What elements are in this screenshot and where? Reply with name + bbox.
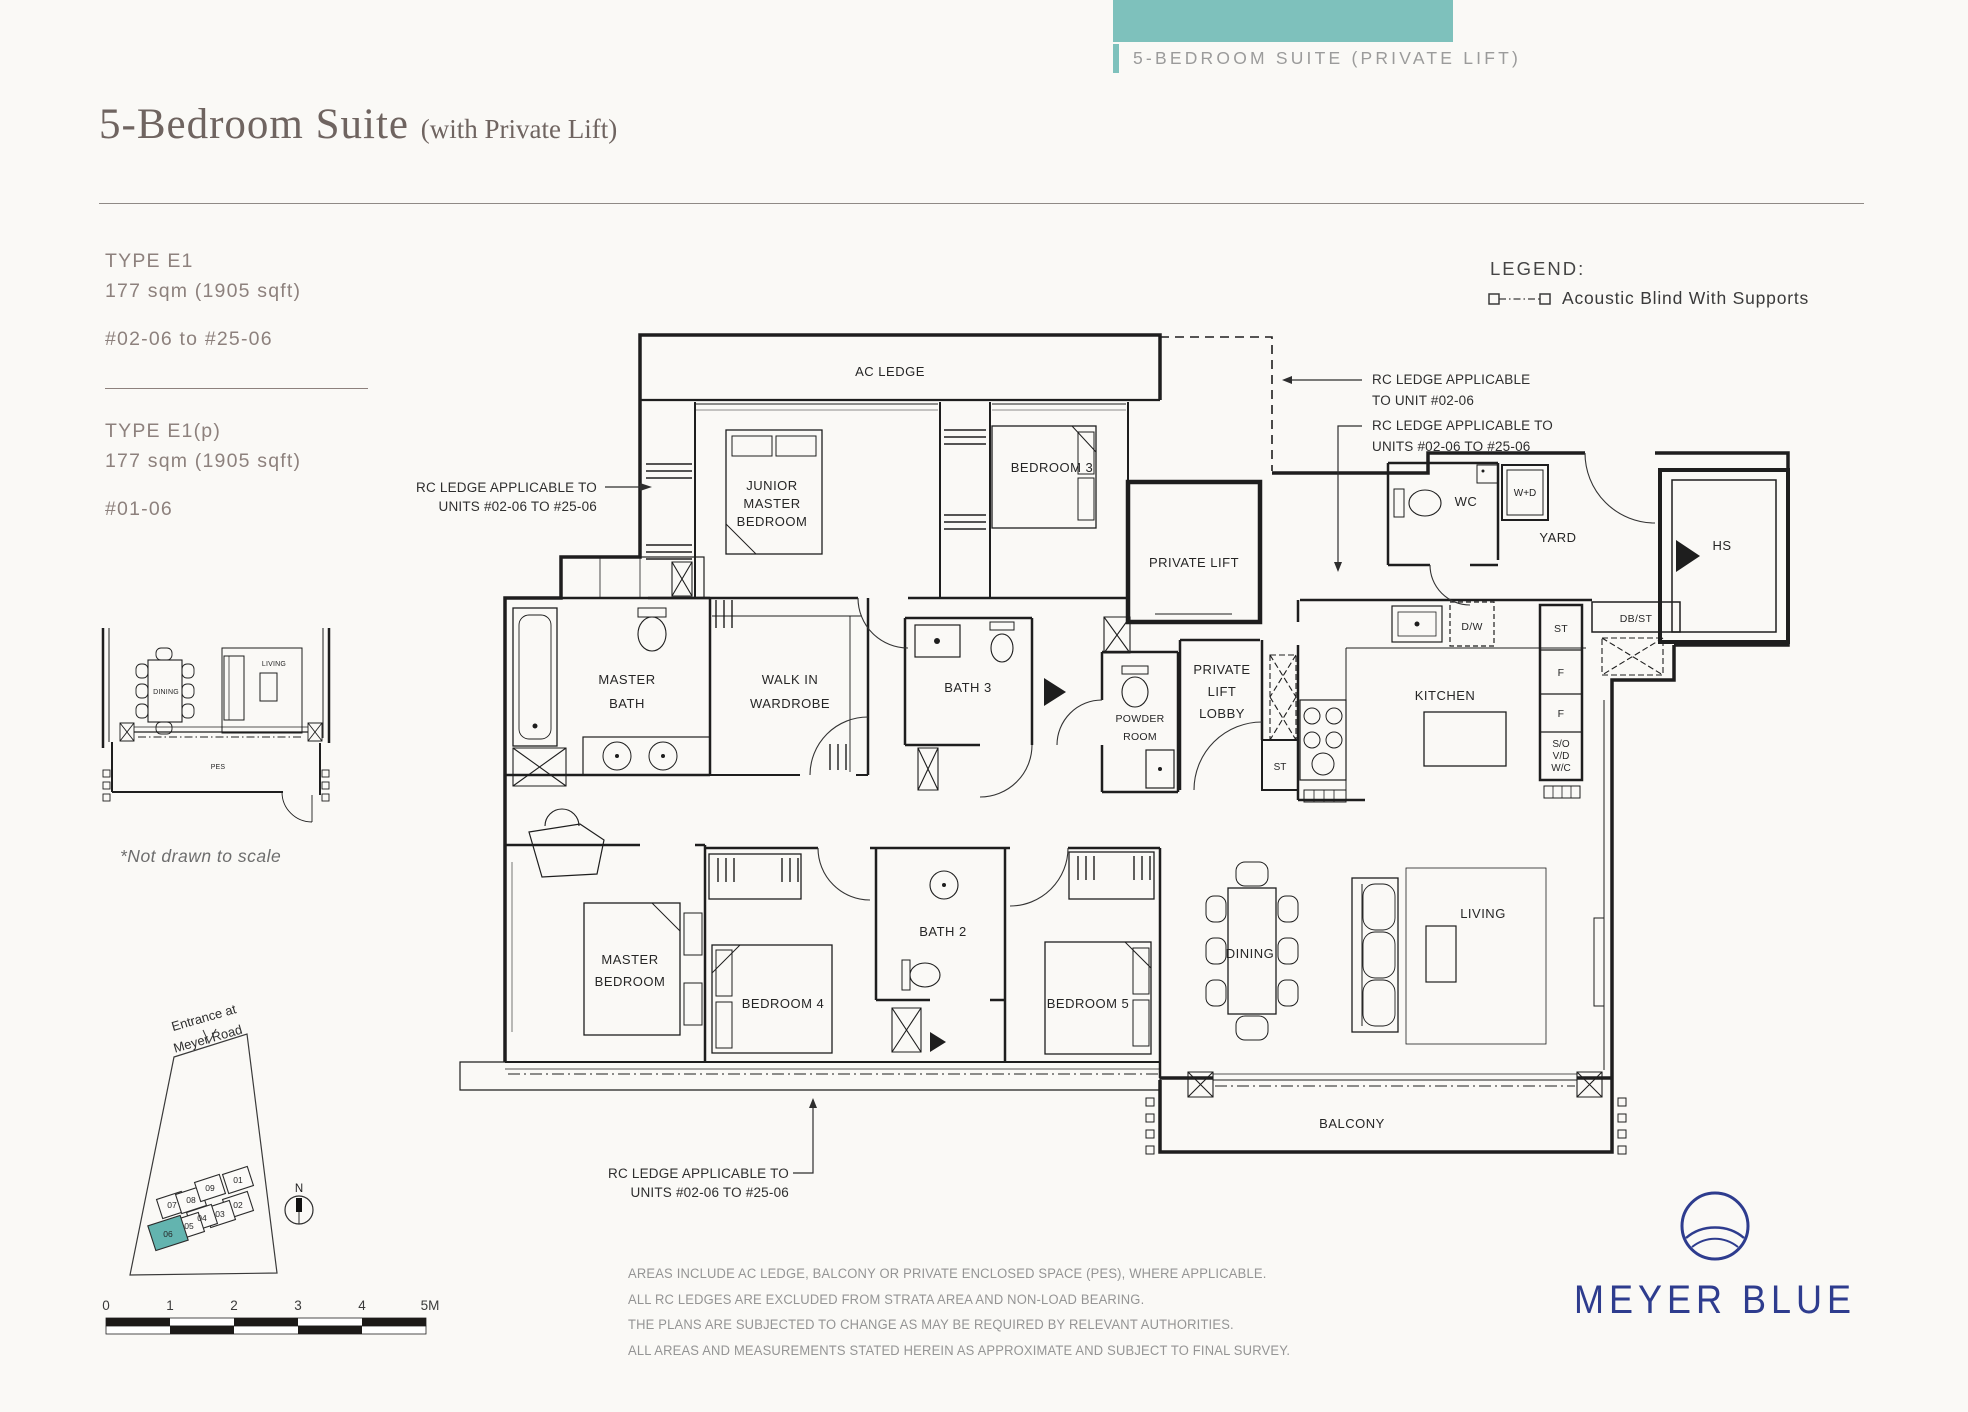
- label-kitchen: KITCHEN: [1415, 688, 1476, 703]
- tick-1: 1: [166, 1298, 174, 1313]
- building-07: 07: [167, 1200, 177, 1210]
- label-junior-3: BEDROOM: [737, 514, 808, 529]
- annotation-right2-2: UNITS #02-06 TO #25-06: [1372, 439, 1530, 454]
- building-05: 05: [184, 1221, 194, 1231]
- building-03: 03: [215, 1209, 225, 1219]
- scale-bar-ticks: 0 1 2 3 4 5M: [102, 1298, 439, 1313]
- building-08: 08: [186, 1195, 196, 1205]
- label-sovd-3: W/C: [1551, 763, 1570, 774]
- label-master-bed-1: MASTER: [601, 952, 658, 967]
- tick-3: 3: [294, 1298, 302, 1313]
- label-powder-1: POWDER: [1115, 713, 1164, 725]
- disclaimer-block: AREAS INCLUDE AC LEDGE, BALCONY OR PRIVA…: [628, 1261, 1290, 1363]
- label-lobby-2: LIFT: [1208, 684, 1237, 699]
- annotation-right1-2: TO UNIT #02-06: [1372, 393, 1474, 408]
- scale-bar: 0 1 2 3 4 5M: [102, 1298, 439, 1334]
- tick-4: 4: [358, 1298, 366, 1313]
- label-bedroom3: BEDROOM 3: [1011, 460, 1094, 475]
- label-sovd-1: S/O: [1552, 739, 1569, 750]
- building-04: 04: [197, 1213, 207, 1223]
- disclaimer-line-2: ALL RC LEDGES ARE EXCLUDED FROM STRATA A…: [628, 1287, 1290, 1313]
- label-bath3: BATH 3: [944, 680, 992, 695]
- label-yard: YARD: [1539, 530, 1576, 545]
- label-master-bed-2: BEDROOM: [595, 974, 666, 989]
- label-junior-2: MASTER: [743, 496, 800, 511]
- label-lobby-1: PRIVATE: [1193, 662, 1250, 677]
- building-06-highlighted: 06: [163, 1229, 173, 1239]
- pes-thumbnail-plan: [103, 628, 329, 822]
- label-bedroom4: BEDROOM 4: [742, 996, 825, 1011]
- label-living: LIVING: [1460, 906, 1506, 921]
- label-private-lift: PRIVATE LIFT: [1149, 555, 1239, 570]
- disclaimer-line-4: ALL AREAS AND MEASUREMENTS STATED HEREIN…: [628, 1338, 1290, 1364]
- building-02: 02: [233, 1200, 243, 1210]
- disclaimer-line-1: AREAS INCLUDE AC LEDGE, BALCONY OR PRIVA…: [628, 1261, 1290, 1287]
- label-dbst: DB/ST: [1620, 613, 1653, 625]
- north-compass-icon: N: [285, 1183, 313, 1224]
- label-st-lobby: ST: [1274, 762, 1287, 773]
- label-lobby-3: LOBBY: [1199, 706, 1245, 721]
- label-st-col: ST: [1554, 623, 1568, 635]
- label-dw: D/W: [1461, 621, 1482, 633]
- label-bedroom5: BEDROOM 5: [1047, 996, 1130, 1011]
- label-wd: W+D: [1514, 488, 1537, 499]
- disclaimer-line-3: THE PLANS ARE SUBJECTED TO CHANGE AS MAY…: [628, 1312, 1290, 1338]
- label-junior-1: JUNIOR: [746, 478, 797, 493]
- annotation-left-1: RC LEDGE APPLICABLE TO: [416, 480, 597, 495]
- tick-0: 0: [102, 1298, 110, 1313]
- building-09: 09: [205, 1183, 215, 1193]
- brand-logo: MEYER BLUE: [1572, 1186, 1858, 1321]
- annotation-right1-1: RC LEDGE APPLICABLE: [1372, 372, 1530, 387]
- building-01: 01: [233, 1175, 243, 1185]
- label-master-bath-1: MASTER: [598, 672, 655, 687]
- label-wiw-2: WARDROBE: [750, 696, 830, 711]
- label-hs: HS: [1712, 538, 1731, 553]
- room-labels: AC LEDGE JUNIOR MASTER BEDROOM BEDROOM 3…: [595, 364, 1732, 1131]
- pes-thumbnail-labels: DINING LIVING PES: [153, 661, 286, 771]
- label-sovd-2: V/D: [1553, 751, 1570, 762]
- brand-logo-text: MEYER BLUE: [1572, 1277, 1858, 1323]
- label-f2: F: [1558, 708, 1565, 720]
- thumb-label-living: LIVING: [262, 661, 286, 668]
- label-wiw-1: WALK IN: [762, 672, 818, 687]
- north-label: N: [295, 1183, 303, 1195]
- label-balcony: BALCONY: [1319, 1116, 1385, 1131]
- floorplan-brochure-page: 5-BEDROOM SUITE (PRIVATE LIFT) 5-Bedroom…: [0, 0, 1968, 1412]
- thumb-label-dining: DINING: [153, 689, 179, 696]
- label-dining: DINING: [1226, 946, 1275, 961]
- label-f1: F: [1558, 667, 1565, 679]
- tick-5m: 5M: [421, 1298, 440, 1313]
- tick-2: 2: [230, 1298, 238, 1313]
- annotation-bottom-2: UNITS #02-06 TO #25-06: [631, 1185, 789, 1200]
- label-ac-ledge: AC LEDGE: [855, 364, 925, 379]
- thumb-label-pes: PES: [211, 764, 226, 771]
- label-wc: WC: [1455, 494, 1478, 509]
- label-bath2: BATH 2: [919, 924, 967, 939]
- meyer-blue-mark-icon: [1674, 1186, 1756, 1268]
- annotation-left-2: UNITS #02-06 TO #25-06: [439, 499, 597, 514]
- label-master-bath-2: BATH: [609, 696, 645, 711]
- annotation-bottom-1: RC LEDGE APPLICABLE TO: [608, 1166, 789, 1181]
- annotation-right2-1: RC LEDGE APPLICABLE TO: [1372, 418, 1553, 433]
- main-floorplan-linework: [460, 335, 1788, 1154]
- label-powder-2: ROOM: [1123, 731, 1157, 743]
- site-map: 01 02 03 04 05 06 07 08 09 Entrance at M…: [130, 1001, 313, 1275]
- plan-annotations: RC LEDGE APPLICABLE TO UNITS #02-06 TO #…: [416, 372, 1553, 1200]
